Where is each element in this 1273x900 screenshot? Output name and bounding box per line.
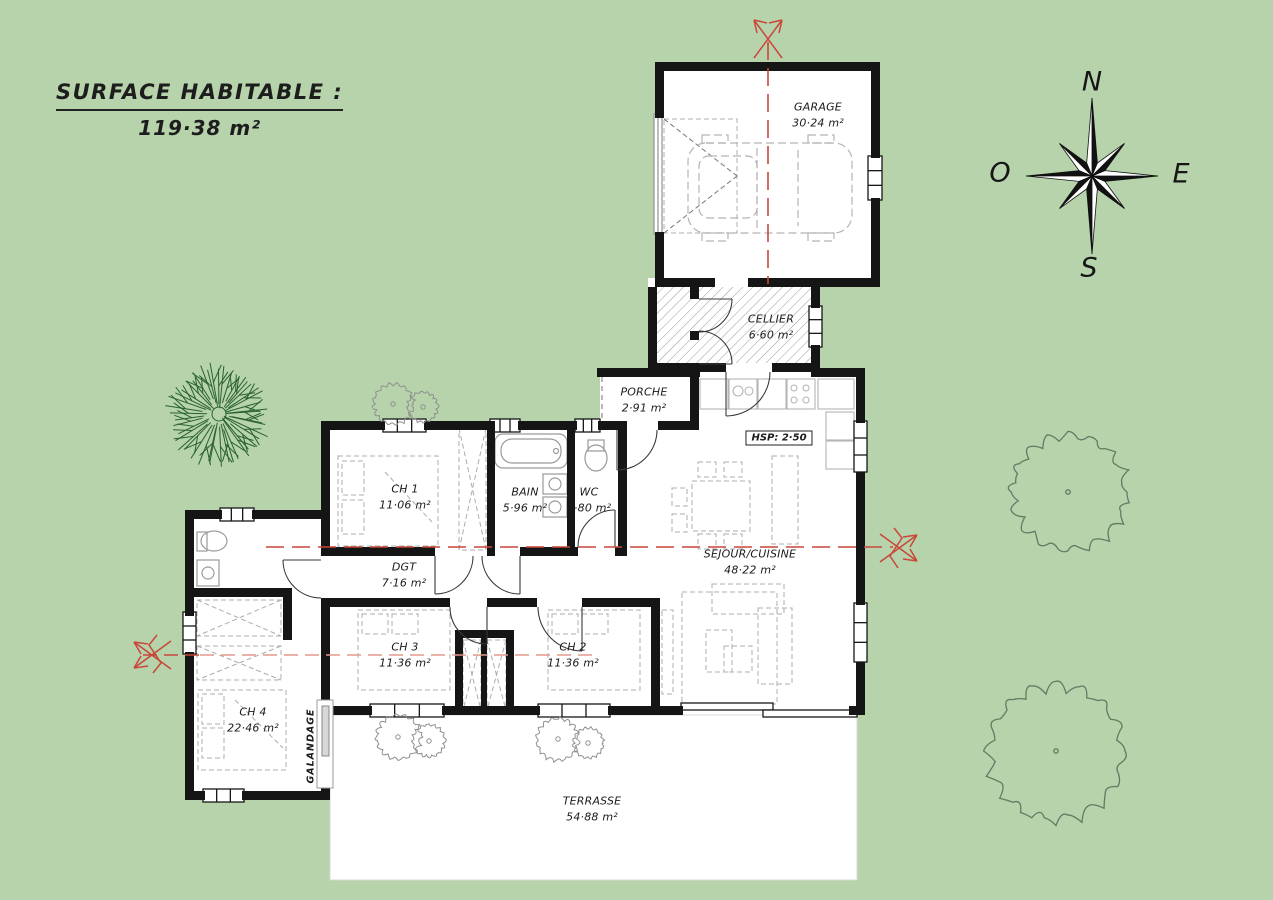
room-label-dgt: DGT7·16 m² (382, 560, 427, 591)
compass-north-label: N (1082, 67, 1102, 98)
room-label-terrasse: TERRASSE54·88 m² (563, 794, 622, 825)
compass-east-label: E (1172, 159, 1189, 190)
surface-title: SURFACE HABITABLE : 119·38 m² (56, 80, 343, 140)
surface-title-text: SURFACE HABITABLE : (56, 80, 343, 111)
galandage-annotation: GALANDAGE (306, 708, 317, 783)
room-label-ch4: CH 422·46 m² (227, 705, 279, 736)
floor-plan-canvas: SURFACE HABITABLE : 119·38 m² N E S O GA… (0, 0, 1273, 900)
room-label-ch1: CH 111·06 m² (379, 482, 431, 513)
room-label-sejour-cuisine: SEJOUR/CUISINE48·22 m² (704, 547, 796, 578)
ceiling-height-annotation: HSP: 2·50 (745, 431, 812, 446)
compass-south-label: S (1080, 253, 1097, 284)
room-label-ch2: CH 211·36 m² (547, 640, 599, 671)
room-label-cellier: CELLIER6·60 m² (748, 312, 794, 343)
surface-area-value: 119·38 m² (56, 116, 343, 140)
room-label-porche: PORCHE2·91 m² (620, 385, 667, 416)
room-label-ch3: CH 311·36 m² (379, 640, 431, 671)
room-label-garage: GARAGE30·24 m² (792, 100, 844, 131)
compass-west-label: O (989, 158, 1010, 189)
room-label-bain: BAIN5·96 m² (503, 485, 548, 516)
room-label-wc: WC1·80 m² (567, 485, 612, 516)
